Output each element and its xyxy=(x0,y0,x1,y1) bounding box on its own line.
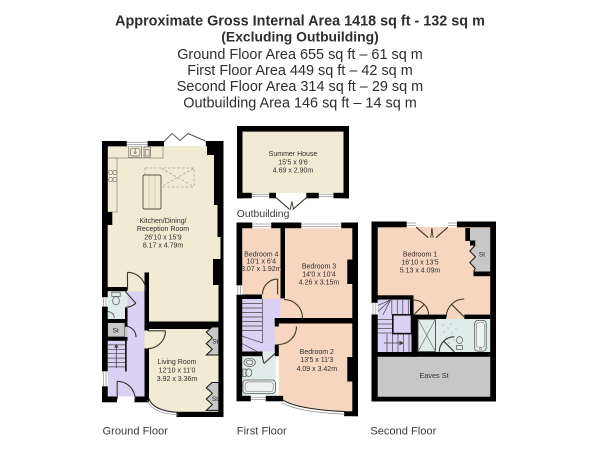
svg-text:4.69 x 2.90m: 4.69 x 2.90m xyxy=(273,168,314,175)
svg-text:Outbuilding: Outbuilding xyxy=(237,209,290,220)
svg-text:Living Room: Living Room xyxy=(158,359,197,366)
svg-text:Summer House: Summer House xyxy=(269,151,318,158)
svg-text:4.26 x 3.15m: 4.26 x 3.15m xyxy=(299,280,340,287)
svg-text:Second Floor Area 314 sq ft –: Second Floor Area 314 sq ft – 29 sq m xyxy=(177,79,423,95)
svg-text:4.09 x 3.42m: 4.09 x 3.42m xyxy=(297,366,338,373)
svg-text:12'10 x 11'0: 12'10 x 11'0 xyxy=(159,367,196,374)
svg-text:Bedroom 3: Bedroom 3 xyxy=(302,264,336,271)
svg-text:First Floor Area 449 sq ft – 4: First Floor Area 449 sq ft – 42 sq m xyxy=(187,63,412,79)
svg-text:St: St xyxy=(212,396,218,403)
svg-text:26'10 x 15'9: 26'10 x 15'9 xyxy=(144,234,181,241)
svg-text:3.92 x 3.36m: 3.92 x 3.36m xyxy=(157,376,198,383)
svg-text:5.13 x 4.09m: 5.13 x 4.09m xyxy=(400,268,441,275)
svg-text:16'10 x 13'5: 16'10 x 13'5 xyxy=(401,260,438,267)
svg-text:Outbuilding Area 146 sq ft – 1: Outbuilding Area 146 sq ft – 14 sq m xyxy=(183,95,417,111)
svg-text:Bedroom 1: Bedroom 1 xyxy=(403,252,437,259)
svg-text:St: St xyxy=(113,328,119,335)
svg-text:Kitchen/Dining/: Kitchen/Dining/ xyxy=(139,218,186,225)
svg-text:Second Floor: Second Floor xyxy=(370,426,436,438)
svg-text:Reception Room: Reception Room xyxy=(137,226,189,233)
svg-text:Ground Floor Area 655 sq ft –: Ground Floor Area 655 sq ft – 61 sq m xyxy=(177,47,423,63)
svg-text:3.07 x 1.92m: 3.07 x 1.92m xyxy=(241,266,282,273)
svg-text:Eaves St: Eaves St xyxy=(419,371,448,380)
svg-text:Approximate Gross Internal Are: Approximate Gross Internal Area 1418 sq … xyxy=(115,13,485,29)
svg-text:St: St xyxy=(479,252,485,259)
svg-text:St: St xyxy=(212,339,218,346)
svg-text:10'1 x 6'4: 10'1 x 6'4 xyxy=(247,259,277,266)
svg-text:First Floor: First Floor xyxy=(237,426,287,438)
svg-text:13'5 x 11'3: 13'5 x 11'3 xyxy=(300,357,333,364)
svg-text:Bedroom 4: Bedroom 4 xyxy=(244,251,278,258)
svg-text:Bedroom 2: Bedroom 2 xyxy=(300,349,334,356)
svg-text:Ground Floor: Ground Floor xyxy=(103,426,169,438)
svg-text:(Excluding Outbuilding): (Excluding Outbuilding) xyxy=(221,28,378,44)
svg-text:14'0 x 10'4: 14'0 x 10'4 xyxy=(302,271,336,278)
svg-text:8.17 x 4.79m: 8.17 x 4.79m xyxy=(143,243,184,250)
svg-text:15'5 x 9'6: 15'5 x 9'6 xyxy=(278,159,308,166)
